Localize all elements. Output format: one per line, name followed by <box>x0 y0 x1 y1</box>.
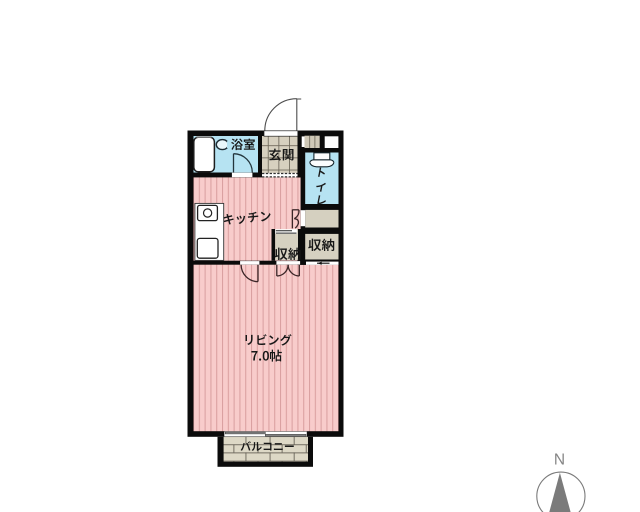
svg-text:バルコニー: バルコニー <box>240 438 295 454</box>
svg-text:7.0帖: 7.0帖 <box>251 346 283 365</box>
svg-text:玄関: 玄関 <box>269 145 295 164</box>
svg-text:収納: 収納 <box>275 243 302 263</box>
svg-text:N: N <box>554 451 565 468</box>
svg-text:収納: 収納 <box>308 234 335 254</box>
svg-text:浴室: 浴室 <box>231 135 256 153</box>
